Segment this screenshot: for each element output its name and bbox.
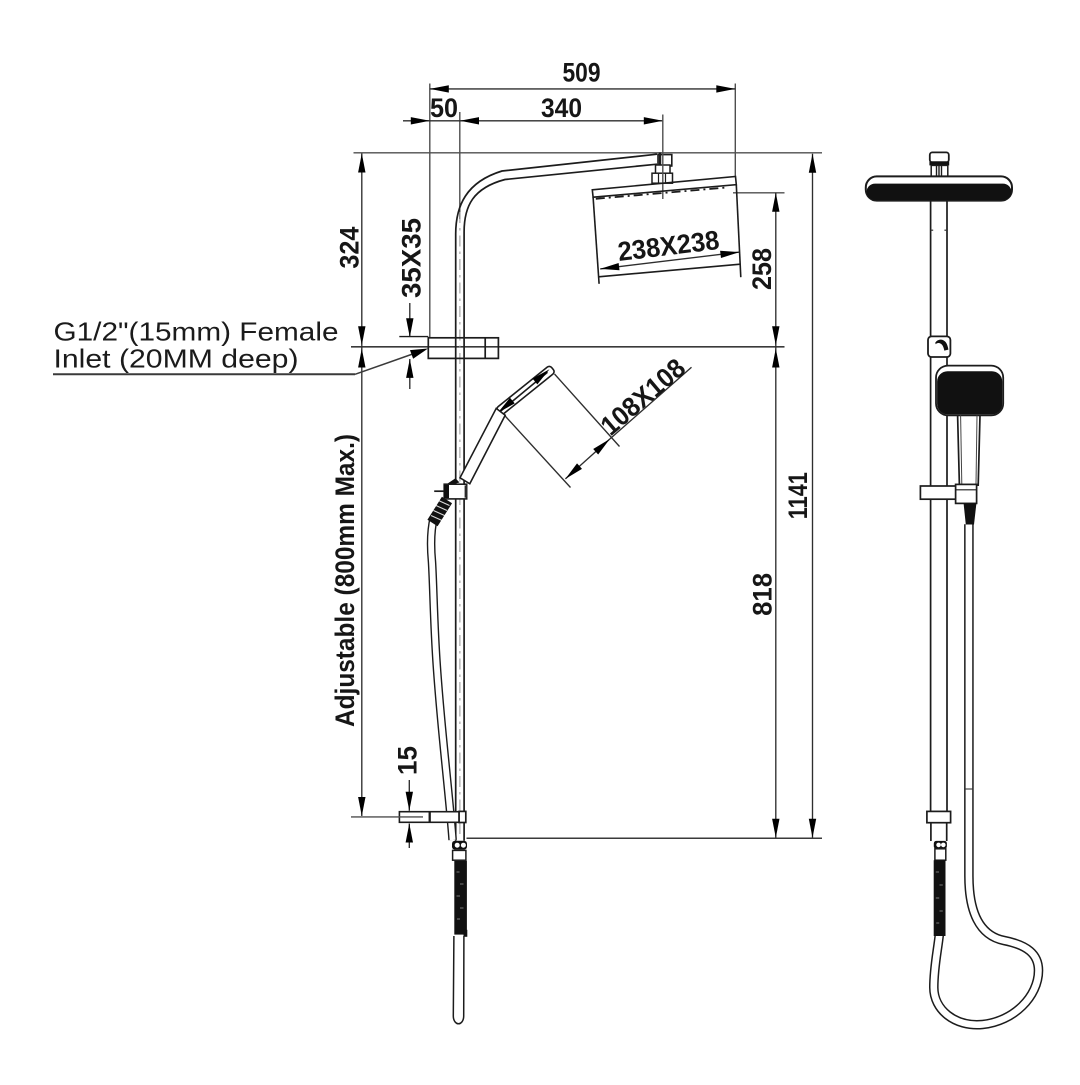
svg-text:35X35: 35X35 xyxy=(397,218,427,298)
svg-text:50: 50 xyxy=(430,93,458,123)
svg-text:509: 509 xyxy=(563,58,601,88)
svg-text:818: 818 xyxy=(747,573,777,616)
svg-text:Inlet (20MM deep): Inlet (20MM deep) xyxy=(54,344,299,374)
svg-text:258: 258 xyxy=(747,248,777,290)
svg-text:324: 324 xyxy=(334,227,364,269)
svg-text:340: 340 xyxy=(541,93,582,123)
svg-text:15: 15 xyxy=(393,746,423,775)
svg-text:Adjustable (800mm Max.): Adjustable (800mm Max.) xyxy=(330,434,360,727)
svg-text:1141: 1141 xyxy=(783,472,813,519)
svg-text:G1/2"(15mm) Female: G1/2"(15mm) Female xyxy=(54,317,339,347)
